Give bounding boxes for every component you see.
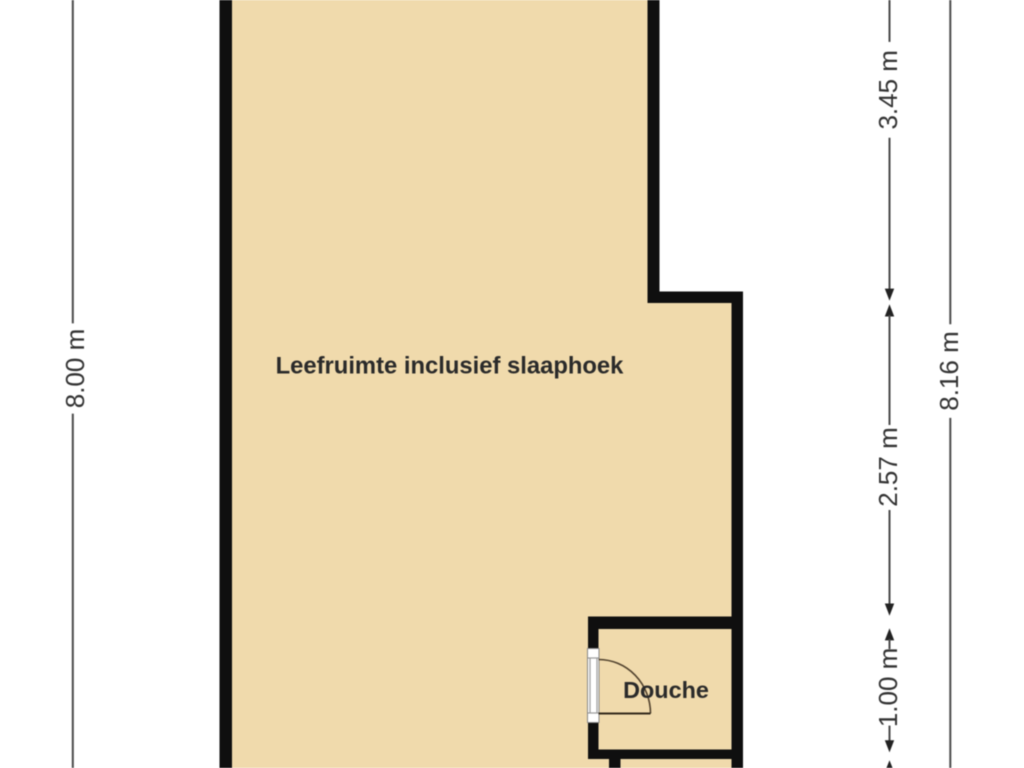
svg-text:Douche: Douche	[623, 677, 709, 703]
svg-text:Leefruimte inclusief slaaphoek: Leefruimte inclusief slaaphoek	[276, 353, 625, 380]
svg-text:8.00 m: 8.00 m	[60, 329, 90, 409]
svg-text:2.57 m: 2.57 m	[873, 427, 903, 507]
svg-text:3.45 m: 3.45 m	[873, 50, 903, 130]
svg-text:8.16 m: 8.16 m	[934, 331, 964, 411]
svg-text:1.00 m: 1.00 m	[873, 648, 903, 728]
